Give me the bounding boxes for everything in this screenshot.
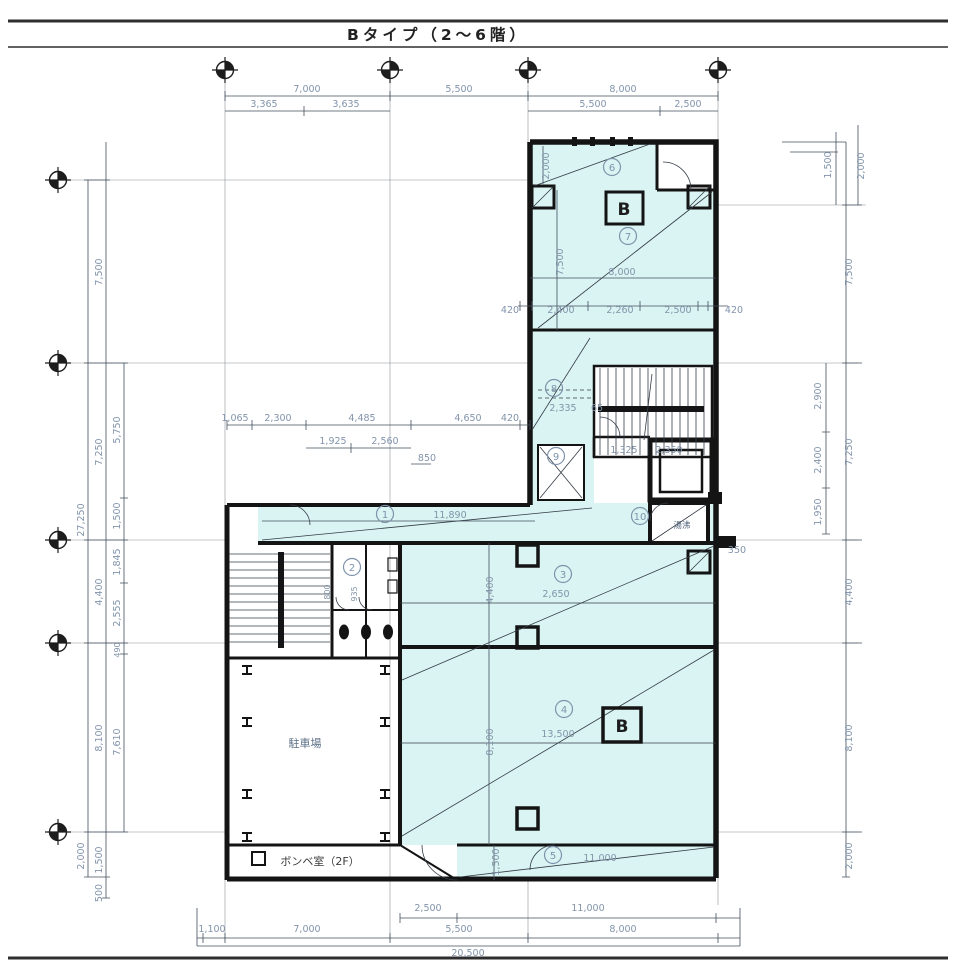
dim-label: 850 [418, 453, 436, 464]
dim-label: 7,250 [844, 438, 855, 465]
room-number: 1 [382, 510, 388, 521]
dim-label: 2,350 [655, 445, 682, 456]
dim-label: 7,000 [293, 924, 320, 935]
room-number: 9 [553, 452, 559, 463]
dim-label: 420 [501, 305, 519, 316]
room-number: 8 [551, 384, 557, 395]
room-number: 10 [634, 512, 647, 523]
dim-label: 420 [501, 413, 519, 424]
grid-marker-icon [515, 57, 541, 83]
stair-handrail [598, 406, 704, 412]
room-number: 6 [609, 163, 615, 174]
dim-label: 2,000 [856, 152, 867, 179]
dim-label: 2,400 [547, 305, 574, 316]
floor-plan-drawing: Bタイプ（2〜6階） [0, 0, 956, 980]
grid-marker-icon [45, 630, 71, 656]
room-number: 7 [625, 232, 631, 243]
grid-marker-icon [377, 57, 403, 83]
dim-label: 2,650 [542, 589, 569, 600]
grid-marker-icon [212, 57, 238, 83]
dim-label: 1,325 [610, 445, 637, 456]
dim-label: 2,500 [674, 99, 701, 110]
dim-label: 27,250 [76, 503, 87, 536]
dim-label: 8,000 [609, 84, 636, 95]
grid-marker-icon [705, 57, 731, 83]
dim-label: 3,635 [332, 99, 359, 110]
floor-plan-sheet: Bタイプ（2〜6階） [0, 0, 956, 980]
grid-marker-icon [45, 350, 71, 376]
dim-label: 20,500 [451, 948, 484, 959]
dim-label: 5,500 [445, 924, 472, 935]
type-b-label: B [618, 200, 631, 220]
dim-label: 5,750 [112, 416, 123, 443]
dim-label: 935 [350, 586, 359, 601]
dim-label: 5,500 [579, 99, 606, 110]
dim-label: 7,500 [555, 248, 566, 275]
dim-label: 7,500 [844, 258, 855, 285]
dim-label: 2,335 [549, 403, 576, 414]
dim-label: 4,400 [485, 576, 496, 603]
room-number: 4 [561, 705, 567, 716]
dim-label: 2,500 [414, 903, 441, 914]
dim-label: 1,500 [94, 846, 105, 873]
dim-label: 2,400 [813, 446, 824, 473]
dim-label: 2,000 [76, 842, 87, 869]
stairs-lower [229, 552, 330, 648]
dim-label: 1,500 [112, 502, 123, 529]
dim-label: 11,890 [433, 510, 466, 521]
dim-label: 2,560 [371, 436, 398, 447]
dim-label: 1,845 [112, 548, 123, 575]
dim-label: 4,650 [454, 413, 481, 424]
dim-label: 1,100 [198, 924, 225, 935]
stair-handrail [278, 552, 284, 648]
dim-label: 7,000 [293, 84, 320, 95]
dim-label: 8,100 [844, 724, 855, 751]
dim-label: 4,400 [94, 578, 105, 605]
kitchenette-label: 湯沸 [673, 520, 691, 531]
room-number: 2 [349, 563, 355, 574]
dim-label: 5,500 [445, 84, 472, 95]
dim-label: 1,925 [319, 436, 346, 447]
dim-label: 11,000 [583, 853, 616, 864]
grid-marker-icon [45, 167, 71, 193]
dim-label: 7,610 [112, 728, 123, 755]
dim-label: 500 [94, 884, 105, 902]
dim-label: 13,500 [541, 729, 574, 740]
dim-label: 7,500 [94, 258, 105, 285]
dim-label: 8,100 [485, 728, 496, 755]
dim-label: 490 [113, 642, 122, 657]
type-b-label: B [616, 717, 629, 737]
parking-label: 駐車場 [289, 736, 322, 750]
dim-label: 420 [725, 305, 743, 316]
dim-label: 1,500 [823, 151, 834, 178]
grid-marker-icon [45, 527, 71, 553]
dim-label: 7,250 [94, 438, 105, 465]
dim-label: 65 [591, 403, 603, 414]
dim-label: 800 [323, 584, 332, 599]
dim-label: 1,065 [221, 413, 248, 424]
sheet-title: Bタイプ（2〜6階） [347, 25, 529, 44]
dim-label: 8,000 [608, 267, 635, 278]
dim-label: 2,260 [606, 305, 633, 316]
dim-label: 2,500 [664, 305, 691, 316]
parking-columns [242, 666, 390, 841]
dim-label: 1,500 [491, 848, 502, 875]
dim-label: 8,100 [94, 724, 105, 751]
dim-label: 2,000 [541, 152, 552, 179]
room-number: 3 [560, 570, 566, 581]
dim-label: 1,950 [813, 498, 824, 525]
dim-label: 8,000 [609, 924, 636, 935]
grid-marker-icon [45, 819, 71, 845]
dim-label: 4,485 [348, 413, 375, 424]
cylinder-room-label: ボンベ室（2F） [280, 854, 359, 868]
dim-label: 11,000 [571, 903, 604, 914]
dim-label: 3,365 [250, 99, 277, 110]
dim-label: 4,400 [844, 578, 855, 605]
cylinder-room: ボンベ室（2F） [252, 852, 360, 868]
dim-label: 350 [728, 545, 746, 556]
dim-label: 2,300 [264, 413, 291, 424]
dim-label: 2,000 [844, 842, 855, 869]
dim-label: 2,555 [112, 599, 123, 626]
dim-label: 2,900 [813, 382, 824, 409]
room-number: 5 [550, 851, 556, 862]
